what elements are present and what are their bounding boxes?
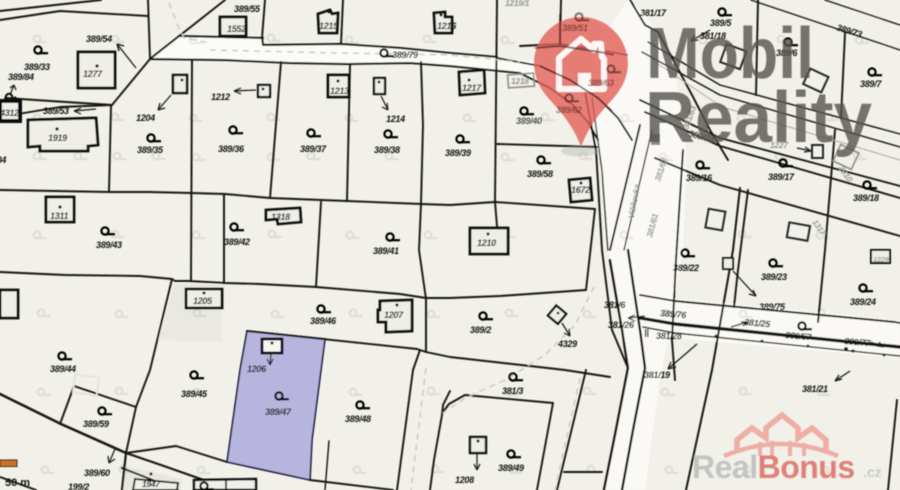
svg-text:1318: 1318 xyxy=(271,212,290,222)
svg-text:389/46: 389/46 xyxy=(310,316,337,326)
svg-text:389/53: 389/53 xyxy=(43,106,69,116)
svg-text:389/36: 389/36 xyxy=(218,144,245,154)
svg-text:389/60: 389/60 xyxy=(84,468,110,478)
svg-text:1215: 1215 xyxy=(319,21,339,31)
svg-text:389/39: 389/39 xyxy=(445,148,471,158)
svg-text:389/38: 389/38 xyxy=(374,145,400,155)
svg-text:1277: 1277 xyxy=(83,69,103,79)
svg-text:389/79: 389/79 xyxy=(392,50,418,60)
svg-text:1204: 1204 xyxy=(136,113,155,123)
svg-text:389/63: 389/63 xyxy=(588,78,614,88)
svg-text:389/40: 389/40 xyxy=(516,116,542,126)
svg-text:.cz: .cz xyxy=(863,464,882,480)
svg-text:389/51: 389/51 xyxy=(562,23,588,33)
svg-text:389/62: 389/62 xyxy=(556,105,582,115)
svg-text:389/2: 389/2 xyxy=(470,325,491,335)
svg-text:389/24: 389/24 xyxy=(850,297,876,307)
svg-text:389/18: 389/18 xyxy=(853,193,879,203)
svg-text:1214: 1214 xyxy=(386,114,405,124)
svg-text:‖: ‖ xyxy=(644,328,649,340)
svg-text:389/54: 389/54 xyxy=(86,34,112,44)
svg-text:1207: 1207 xyxy=(384,310,404,320)
svg-text:389/75: 389/75 xyxy=(759,302,786,312)
svg-text:389/35: 389/35 xyxy=(137,145,164,155)
svg-text:1947: 1947 xyxy=(142,479,161,489)
svg-text:Reality: Reality xyxy=(645,78,872,158)
svg-text:381/3: 381/3 xyxy=(502,386,523,396)
svg-text:389/23: 389/23 xyxy=(761,272,787,282)
svg-text:381/21: 381/21 xyxy=(802,384,828,394)
svg-text:384: 384 xyxy=(0,155,6,165)
svg-text:1229: 1229 xyxy=(873,255,890,264)
svg-text:1218: 1218 xyxy=(511,76,529,86)
svg-text:1219/1: 1219/1 xyxy=(505,0,530,8)
svg-text:1213: 1213 xyxy=(330,86,349,96)
svg-text:389/42: 389/42 xyxy=(224,237,250,247)
svg-text:1212: 1212 xyxy=(211,92,230,102)
svg-text:1919: 1919 xyxy=(48,133,67,143)
svg-text:389/59: 389/59 xyxy=(83,419,109,429)
svg-text:4329: 4329 xyxy=(557,339,577,349)
svg-text:1206: 1206 xyxy=(247,364,267,374)
svg-text:381/6: 381/6 xyxy=(604,300,626,310)
svg-text:1210: 1210 xyxy=(477,238,496,248)
svg-text:1672: 1672 xyxy=(571,185,590,195)
svg-text:389/22: 389/22 xyxy=(673,263,699,273)
svg-text:1205: 1205 xyxy=(193,296,213,306)
svg-text:50 m: 50 m xyxy=(5,477,30,489)
svg-text:389/17: 389/17 xyxy=(768,172,795,182)
svg-text:389/45: 389/45 xyxy=(181,389,208,399)
svg-text:1217: 1217 xyxy=(462,83,482,93)
svg-text:389/41: 389/41 xyxy=(373,246,399,256)
svg-text:199/2: 199/2 xyxy=(68,482,89,490)
svg-text:389/84: 389/84 xyxy=(8,72,34,82)
svg-text:381/19: 381/19 xyxy=(644,370,670,380)
svg-text:389/43: 389/43 xyxy=(96,240,122,250)
svg-text:1311: 1311 xyxy=(50,211,68,221)
svg-text:389/47: 389/47 xyxy=(265,407,292,417)
svg-text:389/33: 389/33 xyxy=(24,62,50,72)
svg-text:1216: 1216 xyxy=(437,21,457,31)
svg-text:389/44: 389/44 xyxy=(50,364,76,374)
svg-text:381/28: 381/28 xyxy=(656,331,682,341)
svg-text:1552: 1552 xyxy=(227,24,246,34)
svg-text:389/55: 389/55 xyxy=(234,4,261,14)
svg-text:389/49: 389/49 xyxy=(498,463,524,473)
svg-text:RealBonus: RealBonus xyxy=(692,449,855,485)
svg-text:1208: 1208 xyxy=(455,475,474,485)
svg-text:389/37: 389/37 xyxy=(300,144,327,154)
svg-text:389/16: 389/16 xyxy=(686,173,713,183)
svg-text:389/48: 389/48 xyxy=(345,414,371,424)
svg-text:381/26: 381/26 xyxy=(608,320,635,330)
svg-text:4312: 4312 xyxy=(0,108,19,118)
svg-text:389/58: 389/58 xyxy=(527,169,553,179)
